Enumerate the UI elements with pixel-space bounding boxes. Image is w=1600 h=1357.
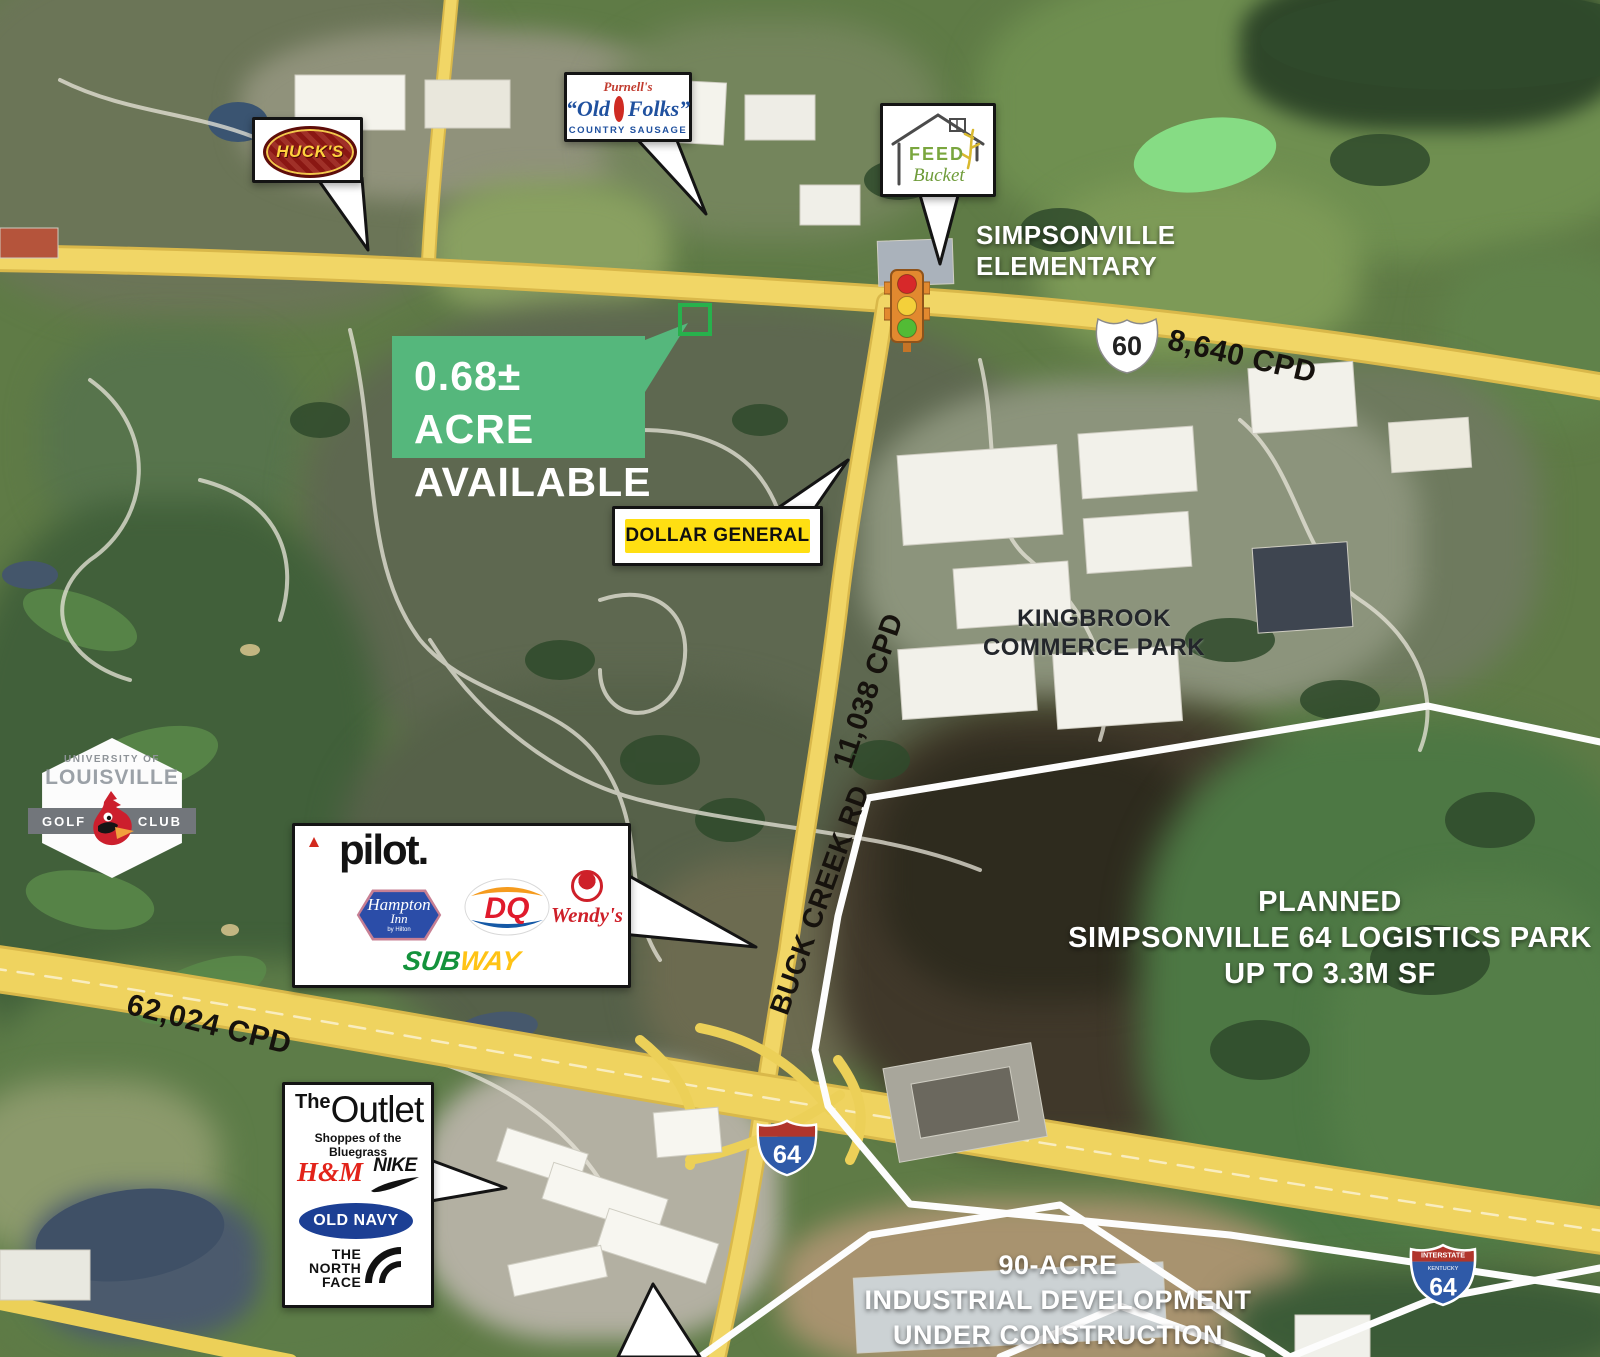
nike-logo: NIKE bbox=[359, 1155, 431, 1198]
svg-text:Bucket: Bucket bbox=[913, 165, 965, 186]
kingbrook-commerce-park-label: KINGBROOK COMMERCE PARK bbox=[983, 604, 1205, 662]
dollar-general-pointer bbox=[772, 460, 848, 512]
hucks-pointer bbox=[317, 178, 368, 250]
logistics-park-label: PLANNED SIMPSONVILLE 64 LOGISTICS PARK U… bbox=[1068, 884, 1592, 992]
svg-text:KENTUCKY: KENTUCKY bbox=[1428, 1266, 1459, 1272]
purnells-script: Purnell's bbox=[567, 79, 689, 95]
us60-road bbox=[0, 258, 1600, 388]
feed-bucket-callout: FEED Bucket bbox=[880, 103, 996, 197]
feed-bucket-logo: FEED Bucket bbox=[887, 108, 989, 190]
dollar-general-logo: DOLLAR GENERAL bbox=[625, 519, 810, 553]
dollar-general-callout: DOLLAR GENERAL bbox=[612, 506, 823, 566]
svg-text:INTERSTATE: INTERSTATE bbox=[1421, 1251, 1465, 1260]
outlet-title: TheOutlet bbox=[295, 1089, 423, 1131]
nike-swoosh-icon bbox=[369, 1177, 421, 1193]
available-callout: 0.68± ACRE AVAILABLE bbox=[392, 336, 645, 458]
us60-shield: 60 bbox=[1092, 314, 1162, 376]
hucks-logo: HUCK'S bbox=[263, 126, 357, 178]
hampton-inn-logo: Hampton Inn by Hilton bbox=[351, 886, 447, 944]
north-face-dome-icon bbox=[365, 1247, 401, 1283]
north-face-logo: THE NORTH FACE bbox=[309, 1247, 401, 1289]
cardinal-icon bbox=[82, 788, 140, 854]
svg-text:64: 64 bbox=[1429, 1275, 1457, 1302]
svg-text:FEED: FEED bbox=[909, 144, 965, 164]
old-folks-callout: Purnell's “Old Folks” COUNTRY SAUSAGE bbox=[564, 72, 692, 142]
svg-text:64: 64 bbox=[773, 1141, 801, 1169]
uofl-golf-club-logo: UNIVERSITY OF LOUISVILLE GOLF CLUB bbox=[36, 738, 188, 878]
svg-text:60: 60 bbox=[1112, 331, 1142, 361]
old-navy-logo: OLD NAVY bbox=[299, 1203, 413, 1239]
i64-shield: 64 bbox=[755, 1118, 819, 1178]
outlet-pointer bbox=[425, 1158, 506, 1202]
aerial-map: 0.68± ACRE AVAILABLE 60 64 INTER bbox=[0, 0, 1600, 1357]
travel-cluster-pointer bbox=[622, 872, 756, 947]
available-line1: 0.68± ACRE bbox=[414, 350, 645, 456]
svg-text:DQ: DQ bbox=[485, 892, 530, 925]
available-line2: AVAILABLE bbox=[414, 456, 645, 509]
old-folks-pointer bbox=[636, 138, 706, 214]
cutoff-pointer bbox=[618, 1284, 700, 1357]
industrial-development-label: 90-ACRE INDUSTRIAL DEVELOPMENT UNDER CON… bbox=[864, 1248, 1251, 1353]
wendys-girl-icon bbox=[571, 870, 603, 902]
subway-logo: SUBWAY bbox=[293, 946, 630, 977]
travel-cluster-callout: pilot. Hampton Inn by Hilton DQ Wendy's … bbox=[292, 823, 631, 988]
available-parcel-outline bbox=[678, 303, 712, 336]
wendys-logo: Wendy's bbox=[547, 870, 627, 928]
hm-logo: H&M bbox=[297, 1157, 363, 1188]
pilot-flame-icon bbox=[308, 837, 320, 849]
old-folks-logo: “Old Folks” bbox=[567, 96, 689, 122]
pig-icon bbox=[614, 96, 624, 122]
pilot-logo: pilot. bbox=[339, 826, 427, 874]
hucks-callout: HUCK'S bbox=[252, 117, 363, 183]
i64-kentucky-shield: INTERSTATE KENTUCKY 64 bbox=[1408, 1242, 1478, 1308]
simpsonville-elementary-label: SIMPSONVILLE ELEMENTARY bbox=[976, 220, 1176, 282]
outlet-callout: TheOutlet Shoppes of the Bluegrass H&M N… bbox=[282, 1082, 434, 1308]
dairy-queen-logo: DQ bbox=[463, 876, 551, 938]
traffic-light-icon bbox=[884, 268, 930, 354]
bottom-left-road bbox=[0, 1300, 290, 1357]
